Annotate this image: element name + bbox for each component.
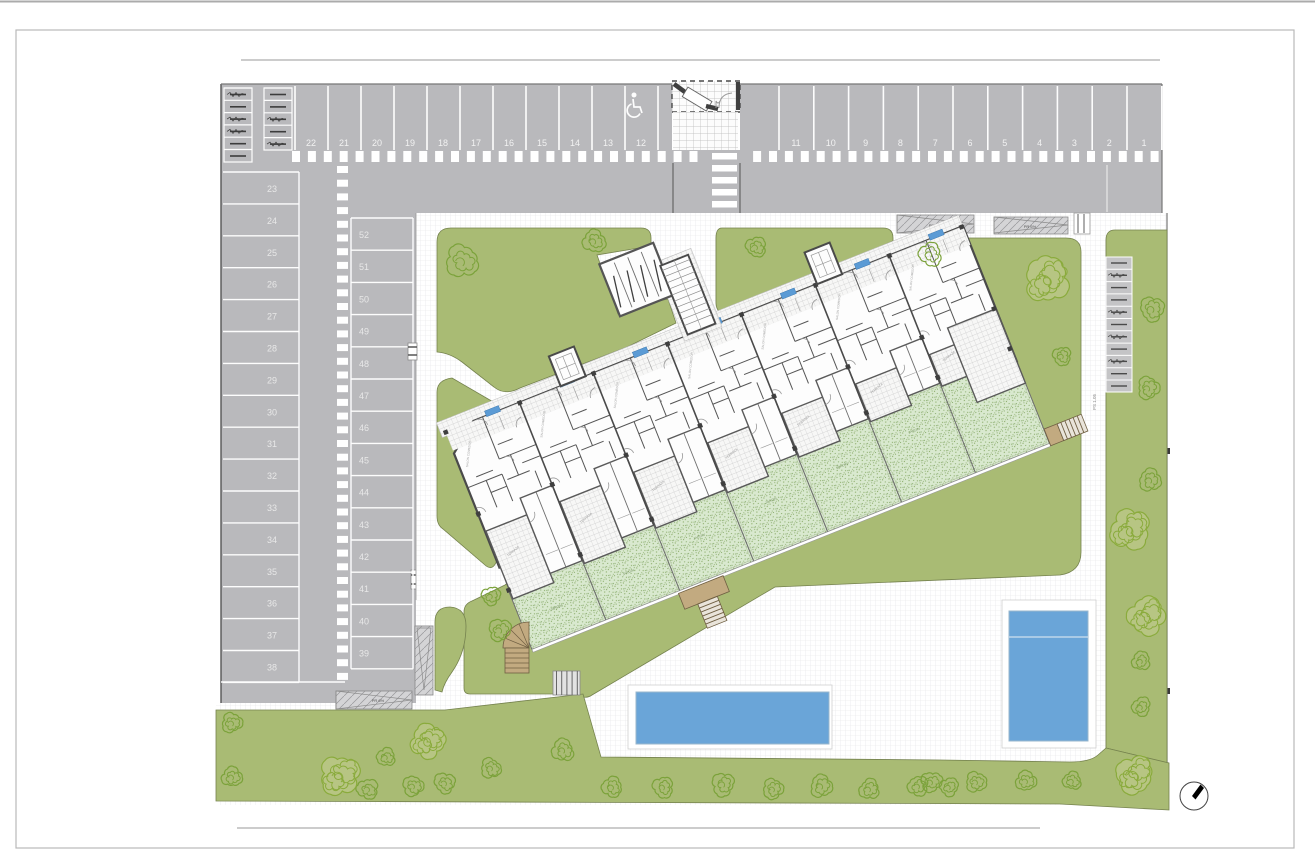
svg-text:48: 48 <box>359 359 369 369</box>
svg-text:25: 25 <box>267 248 277 258</box>
svg-text:27: 27 <box>267 312 277 322</box>
svg-text:29: 29 <box>267 375 277 385</box>
svg-text:PS 1.05: PS 1.05 <box>1092 393 1097 410</box>
svg-text:33: 33 <box>267 503 277 513</box>
svg-text:20: 20 <box>372 138 382 148</box>
svg-text:47: 47 <box>359 391 369 401</box>
svg-text:13: 13 <box>603 138 613 148</box>
svg-text:11: 11 <box>791 138 800 148</box>
svg-text:2: 2 <box>1107 138 1112 148</box>
svg-text:19: 19 <box>405 138 415 148</box>
svg-text:50: 50 <box>359 294 369 304</box>
svg-text:PR 6%: PR 6% <box>1024 224 1037 229</box>
svg-text:4: 4 <box>1037 138 1042 148</box>
svg-text:35: 35 <box>267 567 277 577</box>
svg-text:31: 31 <box>267 439 277 449</box>
svg-text:15: 15 <box>537 138 547 148</box>
svg-text:28: 28 <box>267 344 277 354</box>
svg-text:18: 18 <box>438 138 448 148</box>
svg-text:52: 52 <box>359 230 369 240</box>
svg-text:3: 3 <box>1072 138 1077 148</box>
svg-text:41: 41 <box>359 584 369 594</box>
svg-text:9: 9 <box>863 138 868 148</box>
svg-text:22: 22 <box>306 138 316 148</box>
svg-text:45: 45 <box>359 455 369 465</box>
svg-text:14: 14 <box>570 138 580 148</box>
svg-text:26: 26 <box>267 280 277 290</box>
svg-text:17: 17 <box>471 138 481 148</box>
svg-text:12: 12 <box>636 138 646 148</box>
svg-text:PR 6%: PR 6% <box>372 698 385 703</box>
svg-text:40: 40 <box>359 616 369 626</box>
svg-text:16: 16 <box>504 138 514 148</box>
svg-text:1: 1 <box>1141 138 1146 148</box>
svg-text:39: 39 <box>359 649 369 659</box>
svg-text:30: 30 <box>267 407 277 417</box>
svg-text:21: 21 <box>339 138 349 148</box>
svg-text:43: 43 <box>359 520 369 530</box>
svg-text:24: 24 <box>267 216 277 226</box>
svg-text:8: 8 <box>898 138 903 148</box>
svg-text:10: 10 <box>826 138 836 148</box>
svg-text:51: 51 <box>359 262 369 272</box>
svg-text:44: 44 <box>359 488 369 498</box>
svg-text:34: 34 <box>267 535 277 545</box>
svg-text:5: 5 <box>1002 138 1007 148</box>
svg-text:38: 38 <box>267 663 277 673</box>
svg-text:36: 36 <box>267 599 277 609</box>
svg-text:6: 6 <box>967 138 972 148</box>
svg-text:23: 23 <box>267 184 277 194</box>
svg-text:37: 37 <box>267 631 277 641</box>
svg-text:46: 46 <box>359 423 369 433</box>
svg-text:7: 7 <box>933 138 938 148</box>
svg-text:42: 42 <box>359 552 369 562</box>
svg-text:49: 49 <box>359 327 369 337</box>
svg-text:32: 32 <box>267 471 277 481</box>
